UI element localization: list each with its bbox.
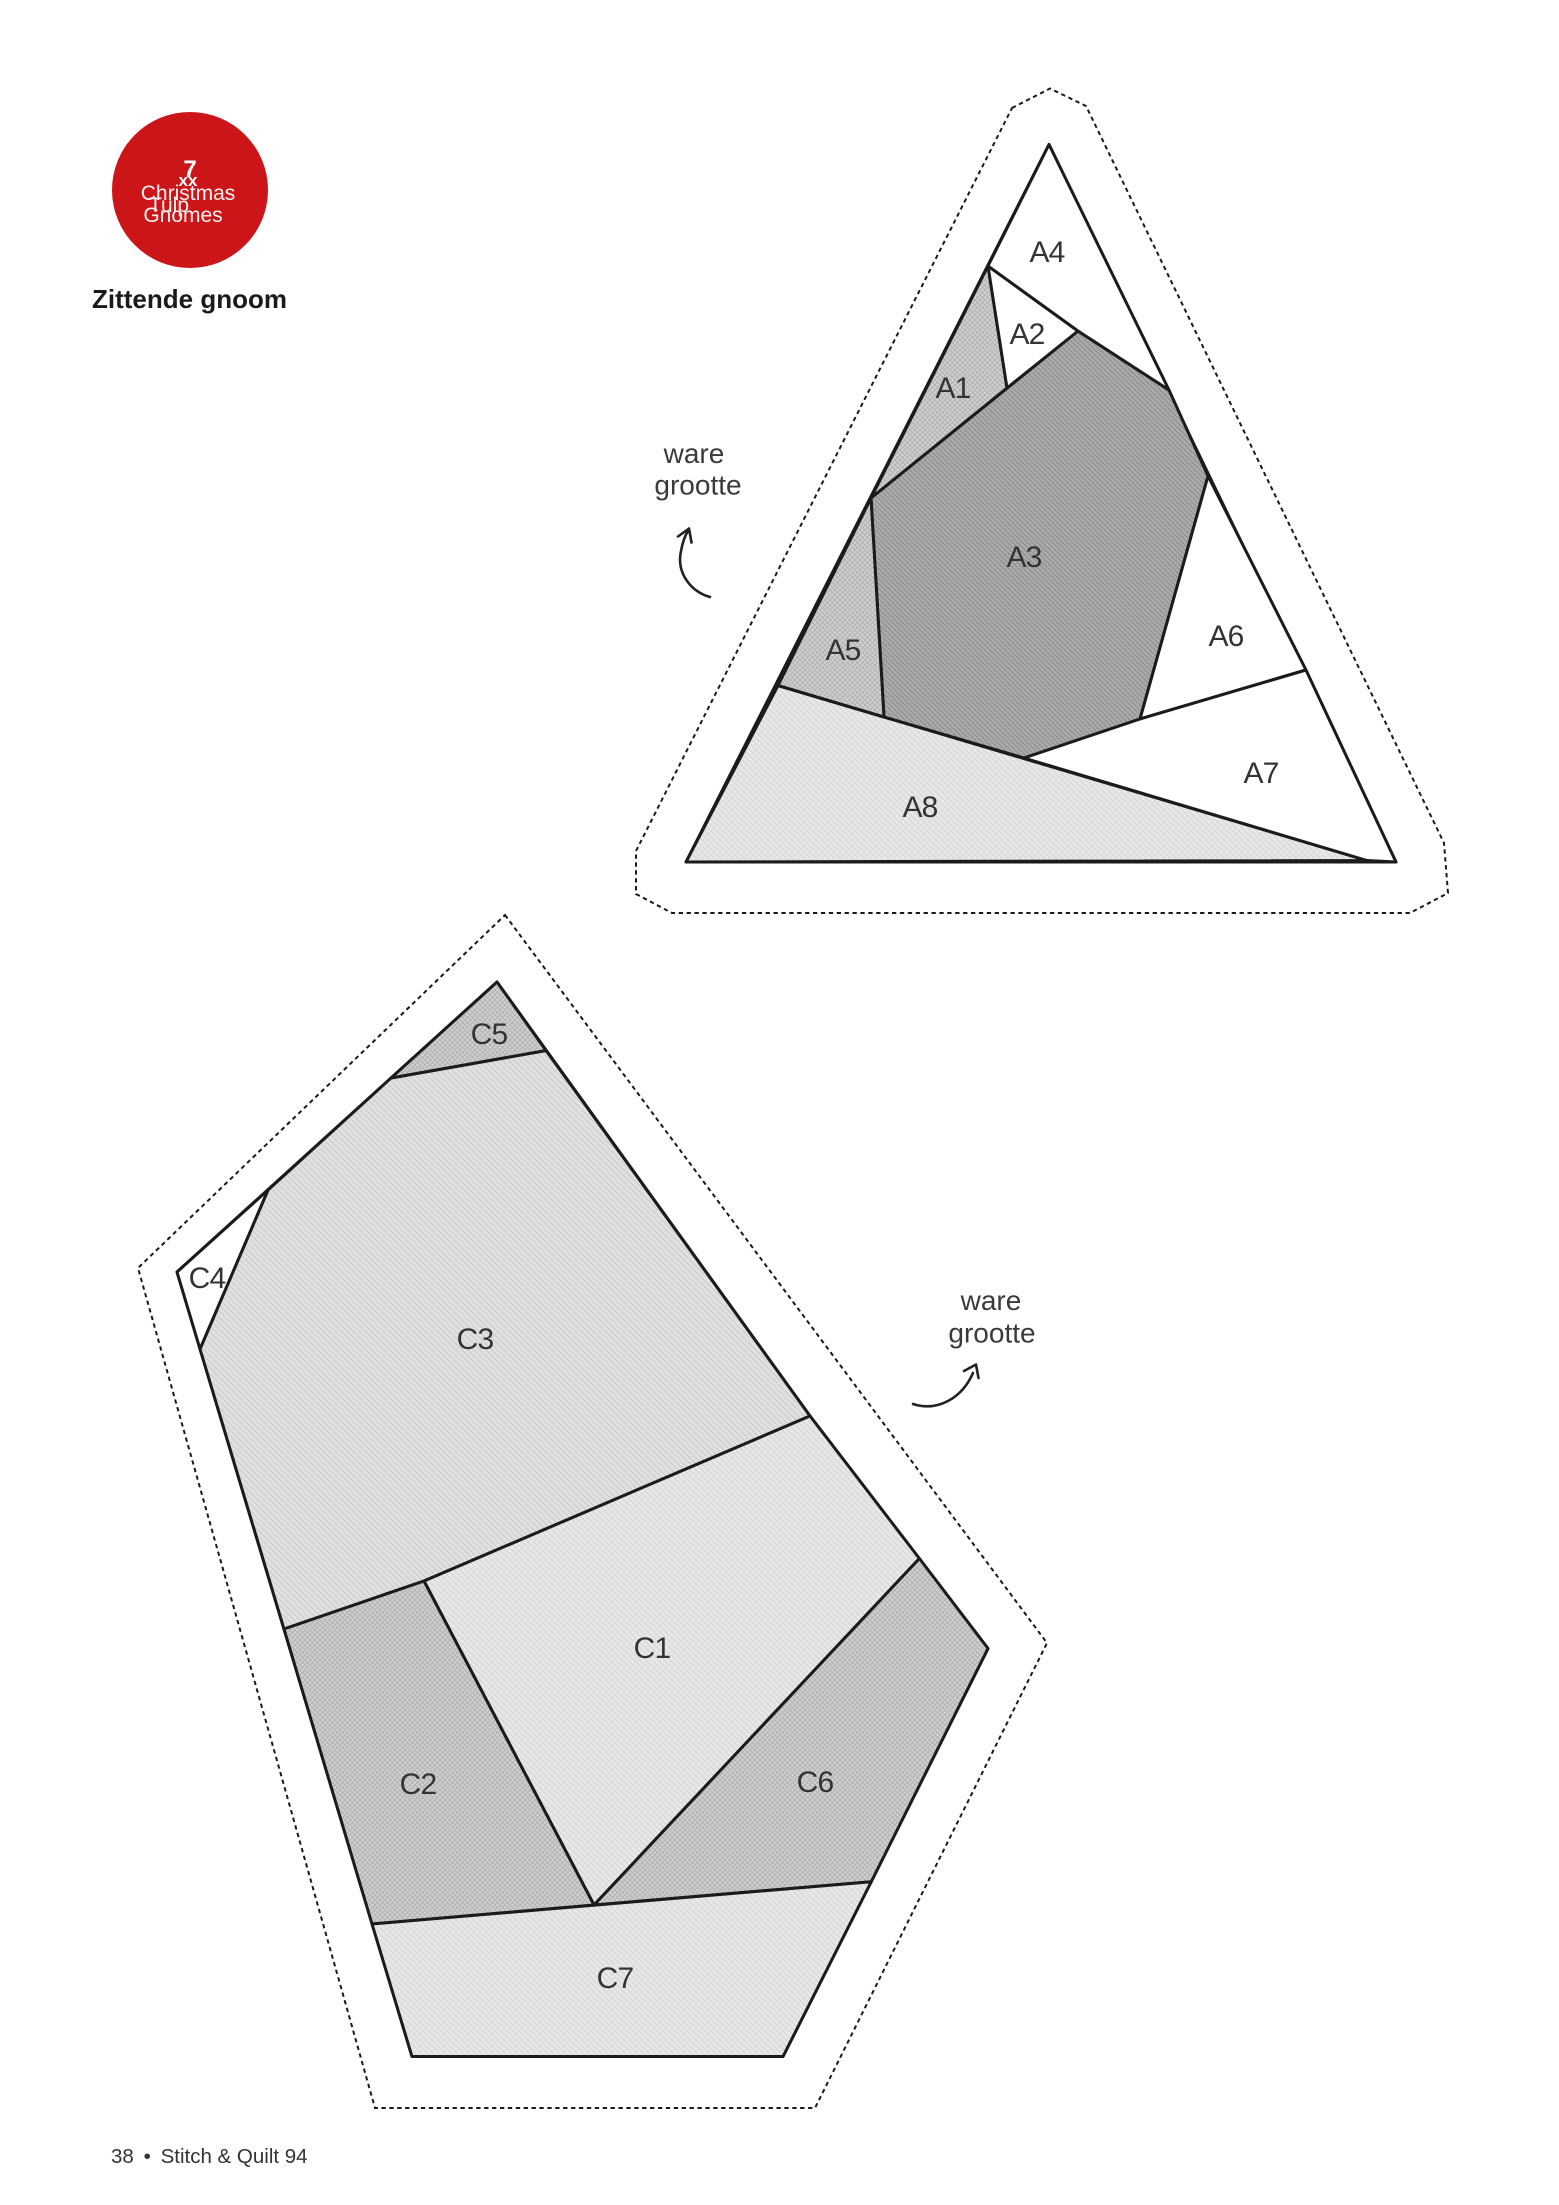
svg-text:C3: C3 xyxy=(457,1323,494,1356)
svg-text:C2: C2 xyxy=(400,1768,437,1801)
svg-text:A6: A6 xyxy=(1208,620,1243,653)
svg-text:A7: A7 xyxy=(1243,757,1278,790)
svg-text:A5: A5 xyxy=(825,634,860,667)
svg-text:ware: ware xyxy=(960,1285,1022,1316)
svg-text:grootte: grootte xyxy=(948,1318,1035,1349)
svg-text:grootte: grootte xyxy=(654,470,741,501)
svg-text:C5: C5 xyxy=(471,1018,508,1051)
svg-text:A4: A4 xyxy=(1029,236,1064,269)
svg-text:38 • Stitch & Quilt 94: 38 • Stitch & Quilt 94 xyxy=(111,2145,308,2168)
svg-text:A1: A1 xyxy=(935,372,970,405)
svg-text:Zittende gnoom: Zittende gnoom xyxy=(92,284,287,314)
svg-text:C1: C1 xyxy=(634,1632,671,1665)
svg-text:C7: C7 xyxy=(597,1962,634,1995)
svg-text:Gnomes: Gnomes xyxy=(143,204,222,227)
svg-text:A8: A8 xyxy=(902,791,937,824)
svg-text:C4: C4 xyxy=(189,1262,226,1295)
svg-text:A3: A3 xyxy=(1006,541,1041,574)
svg-text:C6: C6 xyxy=(797,1766,834,1799)
svg-text:A2: A2 xyxy=(1009,318,1044,351)
svg-text:ware: ware xyxy=(663,438,725,469)
